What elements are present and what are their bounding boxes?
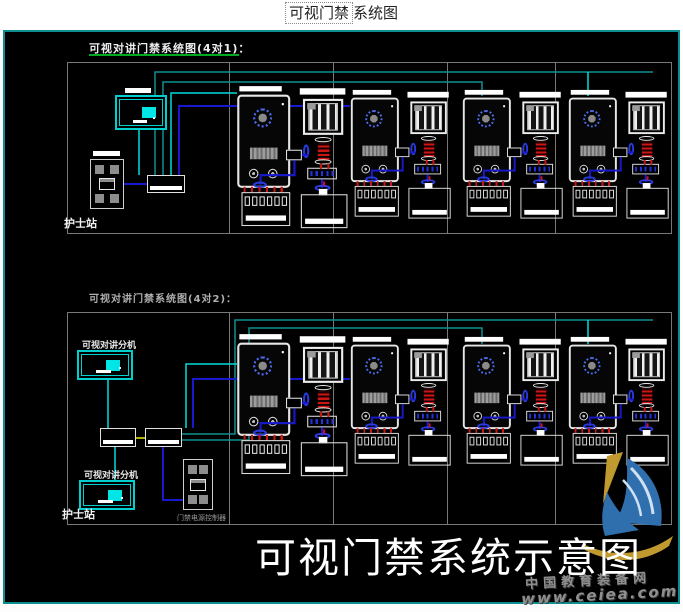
monitor-label: 可视对讲分机: [82, 338, 136, 351]
coil-cap: [639, 136, 654, 141]
indicator-dot: [503, 105, 505, 107]
terminal-strip: [467, 433, 511, 464]
lock-power-controller: [520, 188, 562, 219]
terminal-contacts: [245, 444, 287, 454]
blue-wire: [260, 422, 296, 424]
mount-pad: [199, 465, 208, 474]
lock-power-controller: [408, 435, 450, 466]
call-button: [473, 412, 482, 421]
red-wire: [538, 160, 540, 165]
controller-label-bar: [305, 467, 343, 472]
terminal-contacts: [245, 196, 287, 206]
wire-loop-icon: [410, 390, 416, 402]
junction-box: [632, 411, 659, 422]
device-label-bar: [353, 337, 391, 342]
electric-lock: [628, 101, 664, 134]
blue-wire: [483, 417, 516, 419]
terminal-strip: [355, 433, 399, 464]
distributor-hub: [145, 428, 182, 447]
red-wire: [647, 423, 649, 427]
blue-wire: [302, 154, 308, 156]
junction-box: [632, 164, 659, 175]
terminal-label-bar: [471, 207, 507, 212]
junction-box: [286, 398, 302, 409]
mount-pad: [110, 194, 119, 203]
lock-power-controller: [408, 188, 450, 219]
label-underline: [89, 54, 239, 56]
station-speaker-grille: [474, 146, 499, 157]
mount-pad: [110, 165, 119, 174]
lock-coil: [424, 142, 435, 157]
blue-wire: [627, 151, 633, 153]
terminal-label-bar: [359, 454, 395, 459]
mount-pad: [199, 495, 208, 504]
station-speaker-grille: [250, 396, 278, 408]
lock-grille: [527, 105, 554, 130]
lock-power-controller: [626, 188, 668, 219]
red-wire: [426, 407, 428, 412]
junction-box: [613, 148, 627, 158]
intercom-monitor: [77, 350, 133, 380]
lock-grille: [633, 105, 660, 130]
lock-coil: [642, 142, 653, 157]
junction-box: [526, 411, 553, 422]
lock-coil: [536, 389, 547, 404]
device-label-bar: [571, 337, 609, 342]
station-speaker-grille: [250, 148, 278, 160]
red-wire: [426, 160, 428, 165]
wire-loop-icon: [522, 143, 528, 155]
blue-wire: [521, 398, 527, 400]
controller-label-bar: [630, 210, 665, 215]
door-station-group: [459, 335, 565, 477]
terminal-strip: [467, 186, 511, 217]
panel-core: [99, 178, 115, 190]
monitor-button-bar: [133, 120, 147, 123]
terminal-label-bar: [577, 207, 613, 212]
terminal-strip: [241, 192, 290, 226]
lock-power-controller: [301, 442, 348, 476]
access-power-controller: [183, 459, 213, 510]
call-button: [361, 412, 370, 421]
station-speaker-grille: [580, 393, 605, 404]
call-button: [249, 417, 259, 427]
device-label-bar: [300, 336, 346, 342]
camera-icon: [365, 357, 382, 374]
lock-coil: [318, 391, 330, 408]
call-button: [579, 412, 588, 421]
power-supply-panel: [90, 159, 124, 209]
device-label-bar: [519, 92, 560, 98]
indicator-dot: [503, 352, 505, 354]
blue-wire: [521, 151, 527, 153]
terminal-label-bar: [471, 454, 507, 459]
door-station-group: [233, 332, 350, 489]
red-wire: [647, 176, 649, 180]
terminal-strip: [355, 186, 399, 217]
mount-pad: [95, 165, 104, 174]
indicator-dot: [282, 103, 284, 105]
station-speaker-grille: [362, 146, 387, 157]
monitor-bezel: [81, 354, 129, 376]
camera-icon: [253, 356, 272, 375]
mount-pad: [188, 495, 197, 504]
panel-core: [190, 479, 206, 491]
camera-icon: [583, 110, 600, 127]
terminal-contacts: [470, 437, 508, 446]
terminal-label-bar: [246, 463, 286, 468]
terminal-label-bar: [246, 215, 286, 220]
lock-grille: [633, 352, 660, 377]
wire-loop-icon: [410, 143, 416, 155]
indicator-dot: [391, 352, 393, 354]
red-wire: [650, 407, 652, 412]
station-speaker-grille: [580, 146, 605, 157]
wire-loop-icon: [303, 144, 309, 158]
call-button: [579, 165, 588, 174]
wire-loop-icon: [628, 390, 634, 402]
distributor-hub: [147, 175, 185, 193]
terminal-label-bar: [359, 207, 395, 212]
lock-power-controller: [301, 194, 348, 228]
lock-coil: [318, 143, 330, 160]
lock-power-controller: [520, 435, 562, 466]
red-wire: [541, 423, 543, 427]
red-wire: [320, 164, 322, 169]
controller-label-bar: [524, 210, 559, 215]
indicator-dot: [153, 117, 155, 119]
electric-lock: [522, 348, 558, 381]
monitor-bezel: [83, 484, 131, 506]
mount-pad: [188, 465, 197, 474]
electric-lock: [522, 101, 558, 134]
blue-wire: [589, 170, 622, 172]
junction-box: [414, 164, 441, 175]
station-speaker-grille: [474, 393, 499, 404]
junction-box: [286, 150, 302, 161]
monitor-bezel: [119, 99, 163, 126]
red-wire: [644, 407, 646, 412]
device-label-bar: [465, 337, 503, 342]
door-station-group: [233, 84, 350, 241]
terminal-contacts: [358, 190, 396, 199]
indicator-dot: [282, 351, 284, 353]
nurse-station-label: 护士站: [62, 506, 95, 522]
indicator-dot: [609, 105, 611, 107]
coil-cap: [315, 137, 332, 142]
junction-box: [395, 395, 409, 405]
section-divider: [229, 312, 230, 525]
red-wire: [644, 160, 646, 165]
monitor-button-bar: [98, 500, 114, 503]
coil-cap: [533, 383, 548, 388]
red-wire: [544, 407, 546, 412]
red-wire: [541, 176, 543, 180]
device-label-bar: [125, 88, 151, 93]
device-label-bar: [353, 90, 391, 95]
electric-lock: [303, 99, 343, 135]
title-bar: 可视门禁系统图: [0, 0, 683, 29]
indicator-dot: [609, 352, 611, 354]
camera-icon: [583, 357, 600, 374]
door-station-group: [347, 88, 453, 230]
junction-box: [307, 168, 337, 180]
red-wire: [538, 407, 540, 412]
station-speaker-grille: [362, 393, 387, 404]
terminal-contacts: [358, 437, 396, 446]
lock-coil: [424, 389, 435, 404]
junction-box: [395, 148, 409, 158]
coil-cap: [421, 383, 436, 388]
red-wire: [429, 176, 431, 180]
controller-label-bar: [524, 457, 559, 462]
red-wire: [327, 412, 329, 417]
terminal-contacts: [576, 190, 614, 199]
lock-grille: [308, 103, 338, 131]
door-station-group: [565, 88, 671, 230]
blue-wire: [483, 170, 516, 172]
wire-loop-icon: [303, 392, 309, 406]
mount-pad: [95, 194, 104, 203]
door-station-group: [459, 88, 565, 230]
wire-loop-icon: [628, 143, 634, 155]
blue-wire: [371, 417, 404, 419]
section-divider: [229, 62, 230, 234]
device-label-bar: [93, 151, 120, 156]
terminal-strip: [241, 440, 290, 474]
coil-cap: [421, 136, 436, 141]
red-wire: [327, 164, 329, 169]
blue-wire: [627, 398, 633, 400]
junction-box: [507, 148, 521, 158]
device-label-bar: [300, 88, 346, 94]
device-label-bar: [519, 339, 560, 345]
lock-grille: [527, 352, 554, 377]
electric-lock: [628, 348, 664, 381]
indicator-dot: [119, 367, 121, 369]
device-label-bar: [407, 339, 448, 345]
lock-grille: [415, 105, 442, 130]
big-overlay-title: 可视门禁系统示意图: [255, 524, 642, 584]
lock-grille: [415, 352, 442, 377]
terminal-strip: [573, 186, 617, 217]
electric-lock: [410, 348, 446, 381]
distributor-hub: [100, 428, 136, 447]
cad-canvas[interactable]: 可视对讲门禁系统图(4对1)： 可视对讲门禁系统图(4对2)： 护士站 可视对讲…: [3, 30, 680, 604]
camera-icon: [477, 357, 494, 374]
lock-coil: [642, 389, 653, 404]
red-wire: [432, 407, 434, 412]
call-button: [249, 169, 259, 179]
red-wire: [544, 160, 546, 165]
red-wire: [429, 423, 431, 427]
camera-icon: [477, 110, 494, 127]
terminal-contacts: [470, 190, 508, 199]
junction-box: [526, 164, 553, 175]
device-label-bar: [407, 92, 448, 98]
camera-icon: [253, 108, 272, 127]
intercom-monitor: [115, 95, 167, 130]
lock-grille: [308, 351, 338, 379]
red-wire: [650, 160, 652, 165]
device-label-bar: [239, 334, 281, 339]
controller-label-bar: [305, 219, 343, 224]
monitor-label: 可视对讲分机: [84, 468, 138, 481]
coil-cap: [315, 385, 332, 390]
junction-box: [507, 395, 521, 405]
junction-box: [414, 411, 441, 422]
terminal-contacts: [576, 437, 614, 446]
red-wire: [323, 430, 325, 434]
camera-icon: [365, 110, 382, 127]
blue-wire: [302, 402, 308, 404]
nurse-station-label: 护士站: [64, 215, 97, 231]
lock-coil: [536, 142, 547, 157]
electric-lock: [303, 347, 343, 383]
red-wire: [432, 160, 434, 165]
coil-cap: [639, 383, 654, 388]
monitor-button-bar: [96, 370, 112, 373]
red-wire: [323, 182, 325, 186]
door-station-group: [347, 335, 453, 477]
indicator-dot: [121, 497, 123, 499]
bottom-diagram-label: 可视对讲门禁系统图(4对2)：: [89, 290, 237, 305]
call-button: [473, 165, 482, 174]
indicator-dot: [391, 105, 393, 107]
junction-box: [613, 395, 627, 405]
monitor-screen: [142, 107, 156, 118]
blue-wire: [260, 174, 296, 176]
device-label-bar: [465, 90, 503, 95]
blue-wire: [409, 151, 415, 153]
device-label-bar: [239, 86, 281, 91]
controller-label-bar: [412, 210, 447, 215]
blue-wire: [371, 170, 404, 172]
device-label-bar: [625, 339, 666, 345]
page-title: 系统图: [353, 4, 398, 22]
controller-label-bar: [412, 457, 447, 462]
page-title-selected[interactable]: 可视门禁: [285, 2, 353, 24]
blue-wire: [589, 417, 622, 419]
red-wire: [320, 412, 322, 417]
page: 可视门禁系统图 可视对讲门禁系统图(4对1)： 可视对讲门禁系统图(4对2)：: [0, 0, 683, 612]
call-button: [361, 165, 370, 174]
controller-caption: 门禁电源控制器: [177, 513, 226, 523]
blue-wire: [409, 398, 415, 400]
electric-lock: [410, 101, 446, 134]
device-label-bar: [625, 92, 666, 98]
junction-box: [307, 416, 337, 428]
device-label-bar: [571, 90, 609, 95]
coil-cap: [533, 136, 548, 141]
wire-loop-icon: [522, 390, 528, 402]
